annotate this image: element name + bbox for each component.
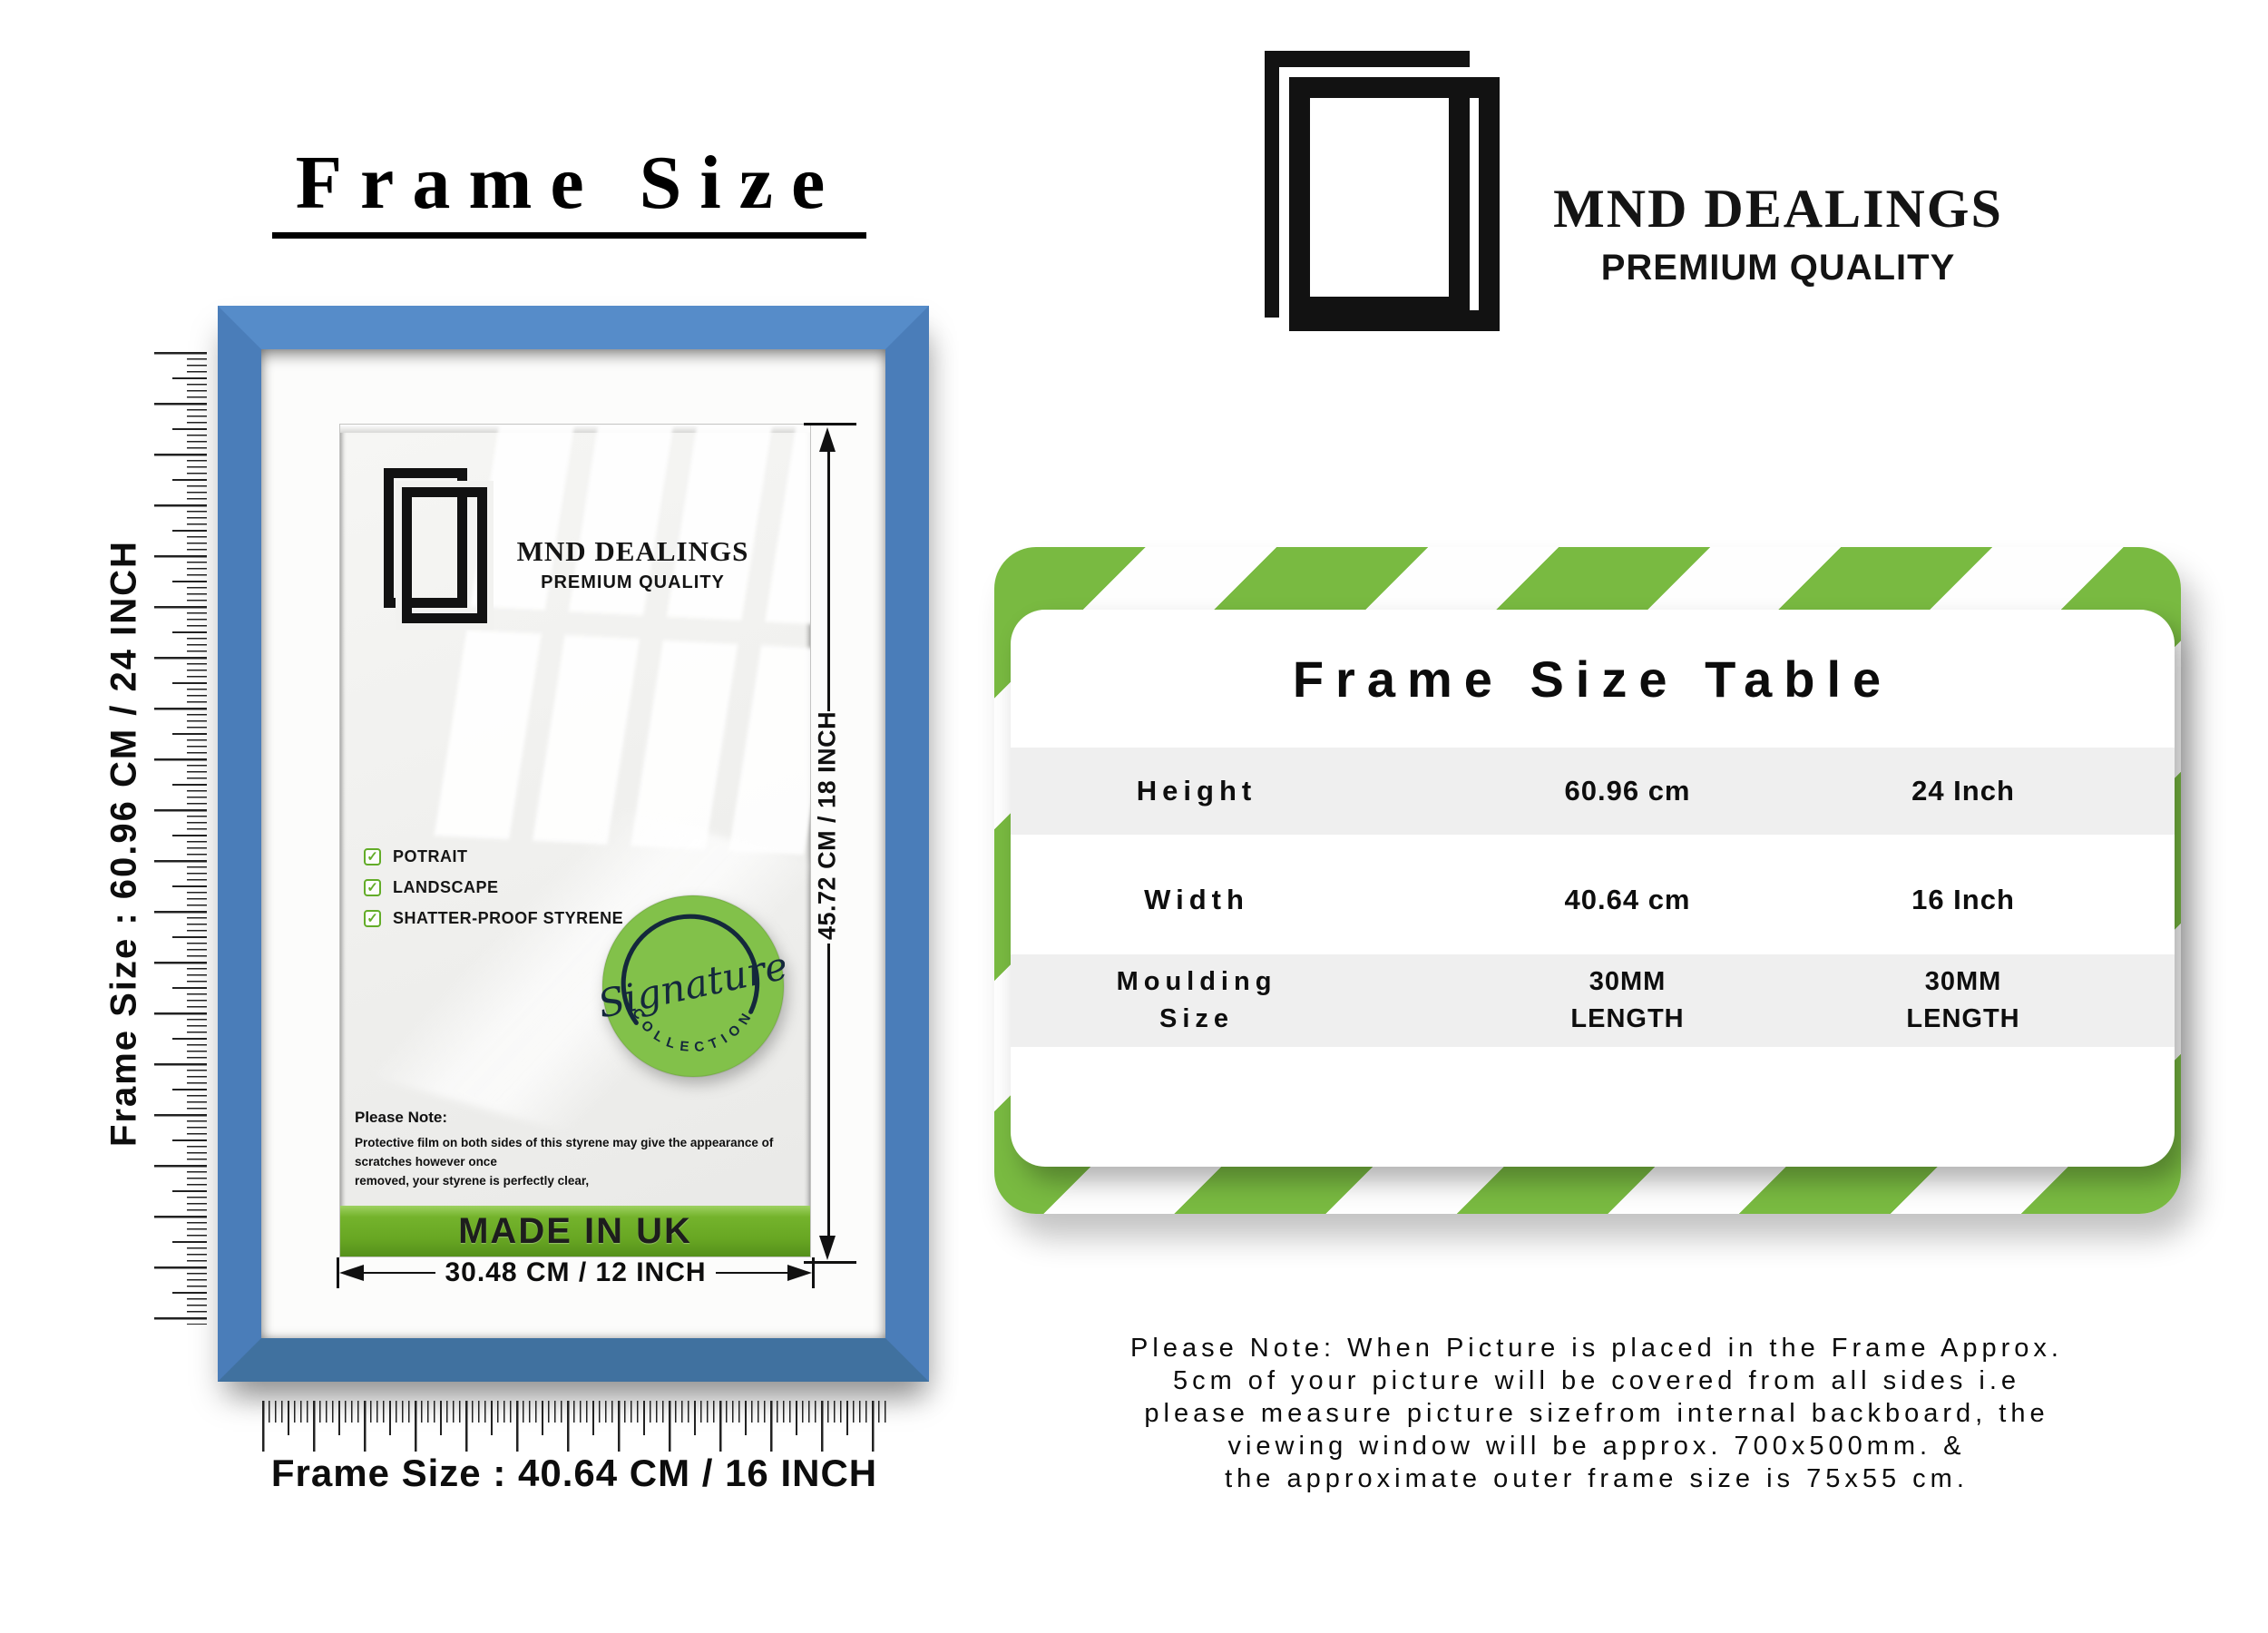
page-title-block: Frame Size bbox=[272, 145, 866, 239]
table-row: Height 60.96 cm 24 Inch bbox=[1011, 748, 2175, 835]
frame-height-label: Frame Size : 60.96 CM / 24 INCH bbox=[98, 454, 151, 1234]
dim-end-bar bbox=[812, 1257, 815, 1288]
footnote-line: 5cm of your picture will be covered from… bbox=[1061, 1364, 2132, 1397]
infographic-canvas: Frame Size MND DEALINGS PREMIUM QUALITY … bbox=[0, 0, 2268, 1633]
feature-list: ✓ POTRAIT ✓ LANDSCAPE ✓ SHATTER-PROOF ST… bbox=[364, 847, 623, 940]
row-imperial-value: 24 Inch bbox=[1818, 748, 2108, 835]
made-in-uk-banner: MADE IN UK bbox=[340, 1206, 810, 1257]
feature-label: LANDSCAPE bbox=[393, 878, 499, 897]
dim-line bbox=[827, 944, 830, 1236]
poster-note: Please Note: Protective film on both sid… bbox=[355, 1109, 807, 1191]
feature-item: ✓ SHATTER-PROOF STYRENE bbox=[364, 909, 623, 928]
ruler-long-ticks bbox=[154, 352, 207, 1325]
row-label: Width bbox=[1047, 856, 1346, 944]
poster-logo-icon bbox=[384, 468, 502, 636]
feature-item: ✓ LANDSCAPE bbox=[364, 878, 623, 897]
dim-line bbox=[827, 450, 830, 711]
height-dimension-label: 45.72 CM / 18 INCH bbox=[802, 706, 853, 945]
poster-brand-name: MND DEALINGS bbox=[499, 535, 767, 568]
arrow-left-icon bbox=[339, 1265, 364, 1281]
poster-note-title: Please Note: bbox=[355, 1109, 807, 1127]
frame-outline-front-icon bbox=[402, 487, 487, 623]
frame-size-table-card: Frame Size Table Height 60.96 cm 24 Inch… bbox=[1011, 610, 2175, 1167]
feature-item: ✓ POTRAIT bbox=[364, 847, 623, 866]
table-row: Moulding Size 30MM LENGTH 30MM LENGTH bbox=[1011, 954, 2175, 1047]
feature-label: POTRAIT bbox=[393, 847, 468, 866]
width-dimension-label: 30.48 CM / 12 INCH bbox=[435, 1257, 715, 1288]
footnote-line: viewing window will be approx. 700x500mm… bbox=[1061, 1430, 2132, 1462]
poster-note-line: removed, your styrene is perfectly clear… bbox=[355, 1172, 807, 1191]
row-imperial-value: 30MM LENGTH bbox=[1818, 954, 2108, 1047]
vertical-ruler bbox=[154, 352, 207, 1325]
frame-outline-front-icon bbox=[1289, 77, 1500, 331]
table-row: Width 40.64 cm 16 Inch bbox=[1011, 856, 2175, 944]
feature-label: SHATTER-PROOF STYRENE bbox=[393, 909, 623, 928]
checkbox-icon: ✓ bbox=[364, 879, 381, 896]
arrow-up-icon bbox=[819, 427, 836, 452]
dim-line bbox=[364, 1272, 435, 1275]
brand-name: MND DEALINGS bbox=[1506, 178, 2050, 240]
brand-tagline: PREMIUM QUALITY bbox=[1506, 248, 2050, 288]
poster-brand-tagline: PREMIUM QUALITY bbox=[499, 572, 767, 593]
row-label: Height bbox=[1047, 748, 1346, 835]
row-imperial-value: 16 Inch bbox=[1818, 856, 2108, 944]
brand-text-block: MND DEALINGS PREMIUM QUALITY bbox=[1506, 178, 2050, 288]
table-title: Frame Size Table bbox=[1011, 650, 2175, 709]
row-label: Moulding Size bbox=[1047, 954, 1346, 1047]
frame-opening-poster: MND DEALINGS PREMIUM QUALITY ✓ POTRAIT ✓… bbox=[340, 425, 810, 1257]
checkbox-icon: ✓ bbox=[364, 848, 381, 865]
row-metric-value: 40.64 cm bbox=[1446, 856, 1809, 944]
ruler-long-ticks bbox=[262, 1401, 886, 1452]
frame-width-label: Frame Size : 40.64 CM / 16 INCH bbox=[262, 1452, 886, 1495]
row-metric-value: 30MM LENGTH bbox=[1446, 954, 1809, 1047]
footnote-block: Please Note: When Picture is placed in t… bbox=[1061, 1332, 2132, 1495]
footnote-line: Please Note: When Picture is placed in t… bbox=[1061, 1332, 2132, 1364]
horizontal-ruler bbox=[262, 1401, 886, 1452]
row-metric-value: 60.96 cm bbox=[1446, 748, 1809, 835]
dim-line bbox=[716, 1272, 787, 1275]
dim-end-bar bbox=[804, 423, 856, 425]
brand-logo-icon bbox=[1265, 51, 1501, 334]
page-title: Frame Size bbox=[272, 145, 866, 221]
poster-brand-block: MND DEALINGS PREMIUM QUALITY bbox=[499, 535, 767, 593]
frame-mat: MND DEALINGS PREMIUM QUALITY ✓ POTRAIT ✓… bbox=[261, 349, 885, 1338]
footnote-line: the approximate outer frame size is 75x5… bbox=[1061, 1462, 2132, 1495]
footnote-line: please measure picture sizefrom internal… bbox=[1061, 1397, 2132, 1430]
width-dimension: 30.48 CM / 12 INCH bbox=[337, 1257, 815, 1288]
signature-collection-badge: COLLECTION Signature bbox=[601, 895, 785, 1078]
poster-note-line: Protective film on both sides of this st… bbox=[355, 1134, 807, 1172]
arrow-right-icon bbox=[787, 1265, 812, 1281]
arrow-down-icon bbox=[819, 1236, 836, 1260]
checkbox-icon: ✓ bbox=[364, 910, 381, 927]
title-underline bbox=[272, 232, 866, 239]
